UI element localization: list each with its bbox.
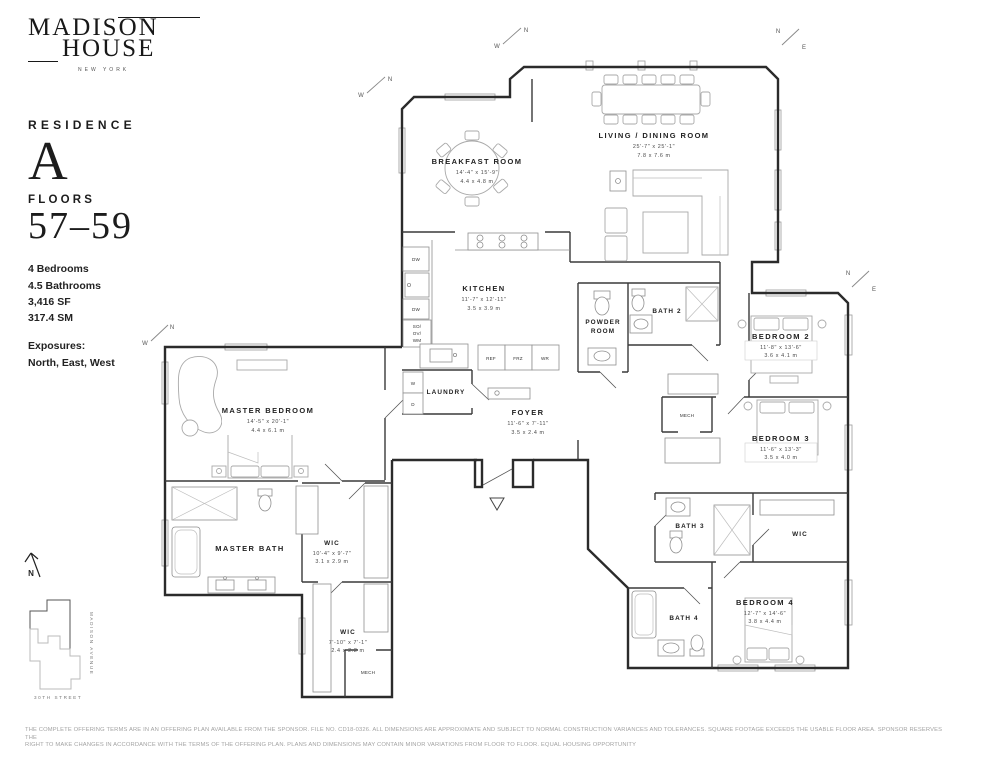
north-arrow-icon: N xyxy=(25,553,40,578)
foyer-dims-m: 3.5 x 2.4 m xyxy=(511,430,544,436)
wic-master-dims-m: 3.1 x 2.9 m xyxy=(315,559,348,565)
powder-label-1: POWDER xyxy=(585,319,620,326)
compass-w-icon: W xyxy=(358,93,364,99)
keyplan: MADISON AVENUE 30TH STREET xyxy=(30,600,94,700)
compass-w-icon: W xyxy=(494,44,500,50)
wic-master-dims-ft: 10'-4" x 9'-7" xyxy=(313,551,352,557)
bath2-label: BATH 2 xyxy=(652,308,681,315)
frz-label: FRZ xyxy=(513,356,523,361)
kitchen-label: KITCHEN xyxy=(462,284,505,293)
foyer-console xyxy=(488,388,530,399)
breakfast-dims-ft: 14'-4" x 15'-9" xyxy=(456,170,498,176)
master-bath-fixtures xyxy=(172,487,275,593)
kitchen-dims-m: 3.5 x 3.9 m xyxy=(467,306,500,312)
ov-label: OV/ xyxy=(413,331,422,336)
bath3-label: BATH 3 xyxy=(675,523,704,530)
laundry-label: LAUNDRY xyxy=(427,389,466,396)
breakfast-label: BREAKFAST ROOM xyxy=(432,157,523,166)
disclaimer-line1: THE COMPLETE OFFERING TERMS ARE IN AN OF… xyxy=(25,727,955,742)
master-bedroom-label: MASTER BEDROOM xyxy=(222,406,315,415)
compass-e-icon: E xyxy=(802,45,806,51)
wic2-dims-m: 2.4 x 2.2 m xyxy=(331,648,364,654)
wic-bedroom4-closet xyxy=(760,500,834,515)
living-dims-m: 7.8 x 7.6 m xyxy=(637,153,670,159)
compass-w-icon: W xyxy=(142,341,148,347)
living-furniture xyxy=(605,170,728,261)
keyplan-building-outline xyxy=(30,629,80,689)
master-bedroom-dims-ft: 14'-5" x 20'-1" xyxy=(247,419,289,425)
wic2-dims-ft: 7'-10" x 7'-1" xyxy=(329,640,368,646)
entry-vestibule xyxy=(475,460,533,510)
bedroom4-furniture xyxy=(733,598,804,664)
bedroom2-dims-m: 3.6 x 4.1 m xyxy=(764,353,797,359)
breakfast-table xyxy=(435,131,508,206)
compass-n-icon: N xyxy=(846,271,850,277)
bath4-label: BATH 4 xyxy=(669,615,698,622)
bedroom3-dims-ft: 11'-6" x 13'-3" xyxy=(760,447,802,453)
bedroom3-label: BEDROOM 3 xyxy=(752,434,810,443)
laundry-fixtures xyxy=(403,372,423,414)
bedroom3-dims-m: 3.5 x 4.0 m xyxy=(764,455,797,461)
kitchen-dims-ft: 11'-7" x 12'-11" xyxy=(462,297,507,303)
bedroom4-dims-m: 3.8 x 4.4 m xyxy=(748,619,781,625)
hall-closet xyxy=(668,374,718,394)
wic2-label: WIC xyxy=(340,629,356,636)
compass-n-icon: N xyxy=(388,77,392,83)
dryer-label: D xyxy=(411,402,415,407)
compass-n-icon: N xyxy=(776,29,780,35)
bedroom3-closet xyxy=(665,438,720,463)
north-letter: N xyxy=(28,569,34,578)
dining-table xyxy=(592,75,710,124)
entry-marker xyxy=(490,498,504,510)
bedroom4-label: BEDROOM 4 xyxy=(736,598,794,607)
compass-n-icon: N xyxy=(170,325,174,331)
wic-bedroom4-label: WIC xyxy=(792,531,808,538)
dw1-label: DW xyxy=(412,257,421,262)
wic-master-label: WIC xyxy=(324,540,340,547)
mech-closet-label: MECH xyxy=(361,670,375,675)
keyplan-avenue-label: MADISON AVENUE xyxy=(89,612,94,675)
washer-label: W xyxy=(411,381,416,386)
compass-e-icon: E xyxy=(872,287,876,293)
wm-label: WM xyxy=(413,338,422,343)
powder-label-2: ROOM xyxy=(591,328,615,335)
appliance-labels: DW DW SO/ OV/ WM REF FRZ WR W D xyxy=(411,257,550,407)
foyer-label: FOYER xyxy=(512,408,545,417)
keyplan-unit-outline xyxy=(30,600,70,649)
so-label: SO/ xyxy=(413,324,422,329)
bedroom2-label: BEDROOM 2 xyxy=(752,332,810,341)
breakfast-dims-m: 4.4 x 4.8 m xyxy=(460,179,493,185)
bedroom2-dims-ft: 11'-8" x 13'-6" xyxy=(760,345,802,351)
disclaimer-line2: RIGHT TO MAKE CHANGES IN ACCORDANCE WITH… xyxy=(25,742,955,750)
bath4-fixtures xyxy=(632,591,704,656)
living-dims-ft: 25'-7" x 25'-1" xyxy=(633,144,675,150)
living-label: LIVING / DINING ROOM xyxy=(599,131,710,140)
keyplan-street-label: 30TH STREET xyxy=(34,695,82,700)
wr-label: WR xyxy=(541,356,550,361)
floor-plan: LIVING / DINING ROOM 25'-7" x 25'-1" 7.8… xyxy=(0,0,1000,772)
compass-n-icon: N xyxy=(524,28,528,34)
compass-marks: W N W N N E N E W N xyxy=(142,28,876,347)
legal-disclaimer: THE COMPLETE OFFERING TERMS ARE IN AN OF… xyxy=(25,727,955,750)
bedroom4-dims-ft: 12'-7" x 14'-6" xyxy=(744,611,786,617)
mech-hall-label: MECH xyxy=(680,413,694,418)
dw2-label: DW xyxy=(412,307,421,312)
ref-label: REF xyxy=(486,356,496,361)
master-bedroom-dims-m: 4.4 x 6.1 m xyxy=(251,428,284,434)
foyer-dims-ft: 11'-6" x 7'-11" xyxy=(507,421,548,427)
master-bath-label: MASTER BATH xyxy=(215,544,284,553)
wic2-closets xyxy=(313,584,388,692)
